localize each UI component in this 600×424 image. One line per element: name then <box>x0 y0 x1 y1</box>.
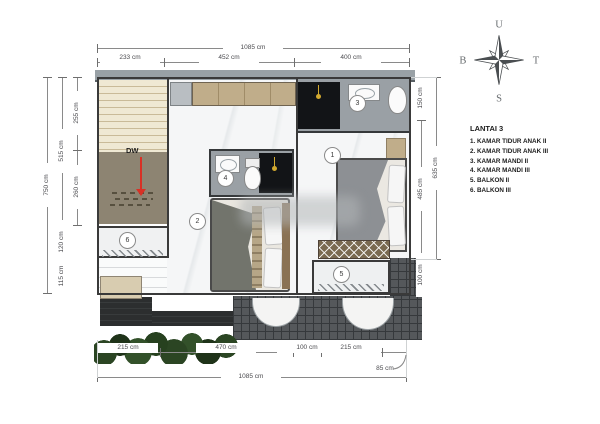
floor-plan-canvas: DW <box>0 0 600 424</box>
legend-item: 4. KAMAR MANDI III <box>470 166 590 176</box>
balcony-ii-floor <box>312 260 390 294</box>
sink-basin <box>220 159 237 171</box>
room-marker-5: 5 <box>333 266 350 283</box>
legend-item: 2. KAMAR TIDUR ANAK III <box>470 147 590 157</box>
stairs-down-arrowhead <box>136 189 146 196</box>
compass-letter-north: U <box>495 19 503 30</box>
legend-item: 3. KAMAR MANDI II <box>470 157 590 167</box>
dim-top-seg1-label: 233 cm <box>100 53 160 63</box>
wardrobe-bedroom-iii <box>192 82 296 106</box>
stairs-direction-label: DW <box>126 146 139 155</box>
compass-letter-east: T <box>533 56 540 67</box>
balcony-ii-hatch <box>318 284 384 291</box>
legend-title: LANTAI 3 <box>470 124 590 133</box>
compass-letter-south: S <box>496 93 502 104</box>
dim-right-overall-label: 635 cm <box>431 146 441 190</box>
shower-fixture-gold-icon <box>316 94 321 99</box>
dim-tick <box>97 58 98 67</box>
compass-rose: U S B T <box>455 16 543 104</box>
watermark <box>240 196 360 226</box>
wardrobe-end-cabinet <box>170 82 192 106</box>
stair-landing <box>99 152 167 224</box>
dim-right-seg2-label: 485 cm <box>416 167 426 211</box>
dim-overhang-leader <box>392 353 410 371</box>
marker-number: 1 <box>331 152 335 159</box>
marker-number: 4 <box>224 175 228 182</box>
stairs-down-arrow <box>140 157 142 189</box>
toilet-mandi-iii <box>244 166 261 190</box>
compass-letter-west: B <box>459 56 466 67</box>
shower-mandi-ii <box>298 82 340 129</box>
dim-bottom-seg4-label: 215 cm <box>321 343 381 353</box>
legend-item: 1. KAMAR TIDUR ANAK II <box>470 137 590 147</box>
stair-landing-texture <box>112 192 154 194</box>
legend: LANTAI 3 1. KAMAR TIDUR ANAK II 2. KAMAR… <box>470 124 590 196</box>
shower-fixture-gold-icon <box>272 166 277 171</box>
shower-arm <box>274 157 275 166</box>
pillow <box>387 165 406 204</box>
wall-stair-divider <box>167 77 169 258</box>
dim-bottom-seg1-label: 215 cm <box>98 343 158 353</box>
dim-right-seg1-label: 150 cm <box>416 76 426 120</box>
dim-top-seg2-label: 452 cm <box>199 53 259 63</box>
carved-bench-deck <box>318 240 390 259</box>
dim-bottom-overall-label: 1085 cm <box>221 372 281 382</box>
marker-number: 6 <box>126 237 130 244</box>
marker-number: 2 <box>196 218 200 225</box>
shower-mandi-iii <box>259 153 292 193</box>
extension-line <box>409 77 437 78</box>
room-marker-1: 1 <box>324 147 341 164</box>
toilet-mandi-ii <box>388 86 407 114</box>
dim-tick <box>73 77 82 78</box>
room-marker-4: 4 <box>217 170 234 187</box>
lower-roof-left <box>100 297 152 326</box>
room-marker-3: 3 <box>349 95 366 112</box>
dim-left-seg1-label: 255 cm <box>72 91 82 135</box>
dim-bottom-seg2-label: 470 cm <box>196 343 256 353</box>
dim-tick <box>58 77 67 78</box>
dim-left-span-label: 515 cm <box>57 129 67 173</box>
dim-left-seg2-label: 260 cm <box>72 165 82 209</box>
pillow <box>263 248 283 289</box>
marker-number: 3 <box>356 100 360 107</box>
lower-roof-left-extension <box>152 311 233 326</box>
dim-left-seg4-label: 115 cm <box>57 254 67 298</box>
room-marker-6: 6 <box>119 232 136 249</box>
legend-item: 5. BALKON II <box>470 176 590 186</box>
dim-top-overall-label: 1085 cm <box>223 43 283 53</box>
room-marker-2: 2 <box>189 213 206 230</box>
balcony-iii-hatch <box>102 250 163 257</box>
extension-line <box>97 340 98 378</box>
shower-arm <box>318 85 319 94</box>
stair-steps <box>99 80 167 152</box>
planter-box <box>100 276 142 299</box>
extension-line <box>409 259 437 260</box>
dim-left-overall-label: 750 cm <box>42 163 52 207</box>
dim-tick <box>43 77 52 78</box>
dim-top-seg3-label: 400 cm <box>321 53 381 63</box>
dim-tick <box>97 44 98 53</box>
wall-room-divider <box>296 77 298 293</box>
marker-number: 5 <box>340 271 344 278</box>
legend-item: 6. BALKON III <box>470 186 590 196</box>
